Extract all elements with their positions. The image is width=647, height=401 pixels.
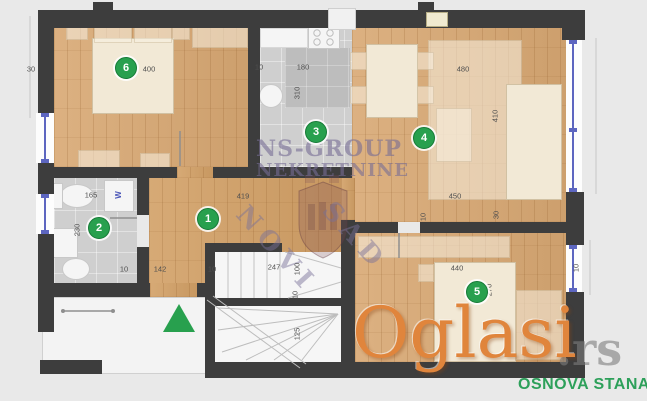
- dim-label: 125: [293, 328, 301, 341]
- wall-stub: [418, 2, 434, 11]
- sink: [62, 258, 90, 280]
- stairwell-lower-floor: [215, 306, 341, 362]
- wall: [420, 222, 566, 233]
- wall: [137, 178, 149, 215]
- pillow: [134, 26, 172, 43]
- chair: [417, 52, 434, 70]
- wall: [205, 243, 215, 373]
- dim-label: 180: [297, 63, 310, 71]
- chair: [417, 86, 434, 104]
- wall: [38, 232, 54, 332]
- room-badge-2: 2: [88, 217, 110, 239]
- agency-name-watermark: NS-GROUP: [256, 136, 402, 162]
- dim-label: 440: [451, 264, 464, 272]
- wall-gap: [328, 8, 356, 30]
- wall-detached: [40, 360, 102, 374]
- dim-label: 450: [449, 192, 462, 200]
- chair: [350, 52, 367, 70]
- sofa: [506, 84, 562, 200]
- dim-label: 10: [419, 213, 427, 221]
- hallway-door-strip: [177, 167, 213, 178]
- dresser-6: [78, 150, 120, 168]
- dining-table: [366, 44, 418, 118]
- portal-watermark: Oglasi: [352, 298, 577, 368]
- kitchen-top-counter: [260, 28, 308, 48]
- wall: [38, 10, 54, 115]
- dim-label: 310: [293, 87, 301, 100]
- washing-machine-label: W: [115, 191, 123, 199]
- doormat-6: [140, 153, 170, 168]
- window-bedroom6: [36, 113, 54, 163]
- dim-label: 410: [491, 110, 499, 123]
- dim-label: 10: [120, 265, 128, 273]
- window-living: [566, 40, 582, 192]
- chair: [350, 86, 367, 104]
- dim-label: 419: [237, 192, 250, 200]
- coffee-table: [436, 108, 472, 162]
- room-badge-3: 3: [305, 121, 327, 143]
- wall: [38, 10, 585, 28]
- dim-label: 480: [457, 65, 470, 73]
- wall: [215, 298, 341, 306]
- dim-label: 247: [268, 263, 281, 271]
- stove-burners: [309, 27, 339, 48]
- wall: [54, 167, 177, 178]
- entrance-arrow: [163, 304, 195, 332]
- floor-plan: NS-GROUP NEKRETNINE NOVI SAD Oglasi .rs …: [0, 0, 647, 401]
- wall: [562, 10, 585, 40]
- dim-label: 10: [255, 63, 263, 71]
- agency-type-watermark: NEKRETNINE: [256, 160, 409, 181]
- dim-label: 10: [208, 265, 216, 273]
- window-bathroom: [36, 194, 54, 234]
- room-badge-6: 6: [115, 57, 137, 79]
- wall: [38, 162, 54, 196]
- dim-label: 400: [143, 65, 156, 73]
- shaft-box: [426, 12, 448, 27]
- kitchen-table: [259, 84, 283, 108]
- room-badge-4: 4: [413, 127, 435, 149]
- wall-stub: [93, 2, 113, 11]
- wall: [566, 192, 584, 245]
- dim-label: 30: [27, 65, 35, 73]
- dim-label: 230: [73, 224, 81, 237]
- plan-caption: OSNOVA STANA: [518, 376, 647, 394]
- nightstand: [418, 264, 434, 282]
- dim-label: 10: [291, 291, 299, 299]
- room-badge-1: 1: [197, 208, 219, 230]
- dim-label: 100: [293, 263, 301, 276]
- wall: [38, 283, 150, 297]
- dim-label: 142: [154, 265, 167, 273]
- dim-label: 30: [492, 211, 500, 219]
- dim-label: 165: [85, 191, 98, 199]
- pillow: [94, 26, 132, 43]
- entry-strip: [150, 283, 197, 297]
- portal-domain-watermark: .rs: [556, 326, 622, 372]
- dim-label: 10: [572, 264, 580, 272]
